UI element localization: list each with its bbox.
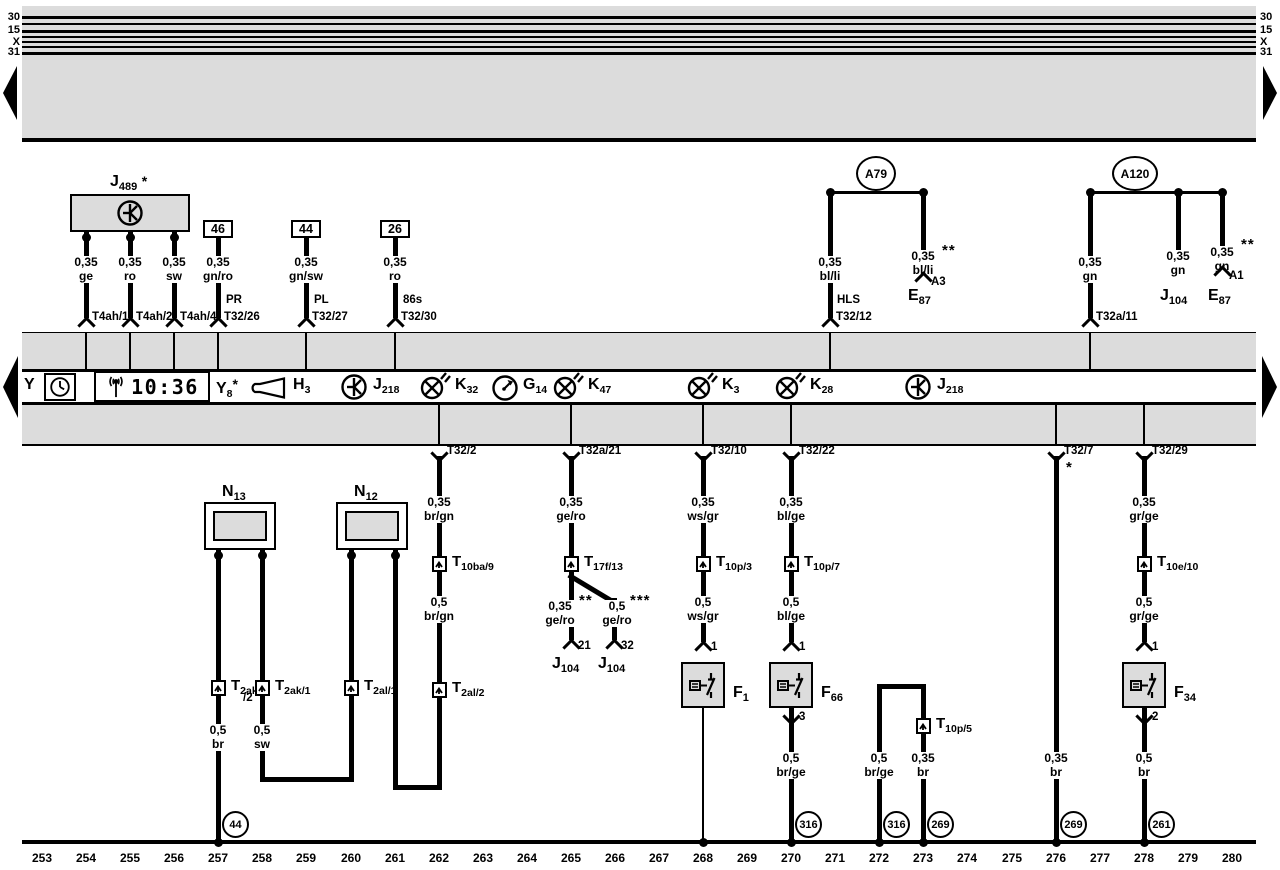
footnote-stars: ** (1241, 236, 1255, 253)
wire-label: 0,5ws/gr (684, 596, 721, 623)
y-label: Y (24, 376, 35, 394)
e87-label: E87 (908, 287, 931, 307)
feed-line (1143, 405, 1146, 444)
h3-label: H3 (293, 376, 310, 396)
feed-line (305, 333, 308, 369)
track-number: 268 (693, 851, 713, 865)
j218-left-label: J218 (373, 376, 399, 396)
radio-clock-display-box: 10:36 (94, 371, 210, 402)
plug-26: 26 (380, 220, 410, 238)
wire-f1-ground (702, 708, 705, 842)
n13-coil (213, 511, 267, 541)
feed-line (85, 333, 88, 369)
horn-icon (246, 377, 288, 399)
f66-label: F66 (821, 684, 843, 704)
ground-point-269: 269 (927, 811, 954, 838)
n12-box (336, 502, 408, 550)
k47-label: K47 (588, 376, 611, 396)
track-number: 270 (781, 851, 801, 865)
a79-link-wire (830, 191, 923, 194)
continuation-arrow-right-icon (1262, 356, 1277, 418)
footnote-star: * (1066, 459, 1073, 476)
t2ak2-label-line2: /2 (243, 692, 253, 704)
rail-label-15-right: 15 (1260, 24, 1280, 36)
track-number: 278 (1134, 851, 1154, 865)
pin-label: 1 (1152, 641, 1158, 653)
bus-line-30 (22, 16, 1256, 19)
track-number: 280 (1222, 851, 1242, 865)
t2al2-label: T2al/2 (452, 679, 485, 699)
a120-node: A120 (1112, 156, 1158, 191)
wire-label: 0,35ge/ro (542, 600, 577, 627)
pin-label: T32/7 (1064, 445, 1093, 457)
track-number: 264 (517, 851, 537, 865)
rail-label-31-left: 31 (2, 46, 20, 58)
t10p3-connector (696, 556, 711, 572)
track-number: 272 (869, 851, 889, 865)
wire-label: 0,35br/gn (421, 496, 457, 523)
warning-lamp-icon (420, 371, 452, 401)
track-number: 277 (1090, 851, 1110, 865)
n12-label: N12 (354, 483, 378, 503)
wire-label: 0,5br/ge (861, 752, 896, 779)
feed-line (394, 333, 397, 369)
wire-t32-7 (1054, 456, 1059, 842)
pin-label: T32/22 (799, 445, 835, 457)
t17f13-connector (564, 556, 579, 572)
bottom-rail (22, 840, 1256, 844)
pin-arrow-icon (782, 707, 800, 725)
a79-node: A79 (856, 156, 896, 191)
rail-label-15-left: 15 (2, 24, 20, 36)
wire-t32-2-mid (437, 572, 442, 682)
switch-icon (687, 668, 721, 702)
track-number: 259 (296, 851, 316, 865)
track-number: 253 (32, 851, 52, 865)
top-band-bottom-border (22, 138, 1256, 142)
feed-line (1089, 333, 1092, 369)
track-number: 260 (341, 851, 361, 865)
t2al2-connector (432, 682, 447, 698)
wire-label: 0,35bl/li (815, 256, 844, 283)
track-number: 279 (1178, 851, 1198, 865)
track-number: 274 (957, 851, 977, 865)
t10ba9-connector (432, 556, 447, 572)
n12-coil (345, 511, 399, 541)
t10p5-connector (916, 718, 931, 734)
pin-label: T4ah/4 (180, 311, 216, 323)
feed-line (702, 405, 705, 444)
track-number: 255 (120, 851, 140, 865)
wire-tag: HLS (837, 294, 860, 306)
warning-lamp-icon (775, 371, 807, 401)
wire-label: 0,35gn (1075, 256, 1104, 283)
strip-upper-thin-border (22, 332, 1256, 334)
feed-line (173, 333, 176, 369)
feed-line (570, 405, 573, 444)
bridge-top-wire (877, 684, 927, 689)
pin-label: T32a/21 (579, 445, 621, 457)
ground-point-261: 261 (1148, 811, 1175, 838)
track-number: 265 (561, 851, 581, 865)
wire-label: 0,5sw (251, 724, 274, 751)
wire-label: 0,35gn/ro (200, 256, 236, 283)
t10e10-label: T10e/10 (1157, 553, 1198, 573)
track-number: 257 (208, 851, 228, 865)
bus-line-31 (22, 52, 1256, 55)
pin-label: T32/27 (312, 311, 348, 323)
f1-label: F1 (733, 684, 749, 704)
wire-tag: 86s (403, 294, 422, 306)
wiring-diagram-page: 30 15 X 31 30 15 X 31 J489 * 0,35ge 0,35… (0, 0, 1280, 870)
k32-label: K32 (455, 376, 478, 396)
pin-label: 21 (578, 640, 591, 652)
e87-label: E87 (1208, 287, 1231, 307)
wire-label: 0,5gr/ge (1126, 596, 1161, 623)
n12-col262-bridge-wire (393, 785, 442, 790)
track-number: 271 (825, 851, 845, 865)
f1-box (681, 662, 725, 708)
t10e10-connector (1137, 556, 1152, 572)
j104-label: J104 (552, 655, 579, 675)
continuation-arrow-left-icon (3, 66, 17, 120)
n12-right-leg-wire (393, 550, 398, 790)
t10p7-label: T10p/7 (804, 553, 840, 573)
continuation-arrow-right-icon (1263, 66, 1277, 120)
t2al1-connector (344, 680, 359, 696)
wire-label: 0,5bl/ge (774, 596, 808, 623)
track-number: 258 (252, 851, 272, 865)
warning-lamp-icon (687, 371, 719, 401)
pin-label: T32/10 (711, 445, 747, 457)
rail-label-31-right: 31 (1260, 46, 1280, 58)
bus-line-thin-2 (22, 36, 1256, 38)
rail-label-30-left: 30 (2, 11, 20, 23)
footnote-stars: ** (579, 592, 593, 609)
plug-46: 46 (203, 220, 233, 238)
pin-label: T4ah/1 (92, 311, 128, 323)
footnote-stars: ** (942, 242, 956, 259)
j104-label: J104 (598, 655, 625, 675)
pin-label: T32a/11 (1096, 311, 1138, 323)
t2ak2-connector (211, 680, 226, 696)
n13-box (204, 502, 276, 550)
wire-label: 0,35ge (71, 256, 100, 283)
bus-line-thin-3 (22, 46, 1256, 48)
track-number: 276 (1046, 851, 1066, 865)
feed-line (790, 405, 793, 444)
wire-label: 0,35br (908, 752, 937, 779)
g14-label: G14 (523, 376, 547, 396)
ground-point-316: 316 (883, 811, 910, 838)
control-unit-icon (340, 373, 368, 401)
pin-label: T4ah/2 (136, 311, 172, 323)
t10p3-label: T10p/3 (716, 553, 752, 573)
feed-line (217, 333, 220, 369)
track-number: 261 (385, 851, 405, 865)
t2al1-label: T2al/1 (364, 677, 397, 697)
wire-label: 0,35gn/sw (286, 256, 326, 283)
rail-label-30-right: 30 (1260, 11, 1280, 23)
j218-right-label: J218 (937, 376, 963, 396)
t2ak1-connector (255, 680, 270, 696)
wire-label: 0,35sw (159, 256, 188, 283)
plug-44: 44 (291, 220, 321, 238)
ground-point-269: 269 (1060, 811, 1087, 838)
pin-label: T32/29 (1152, 445, 1188, 457)
wire-label: 0,35ro (115, 256, 144, 283)
track-number: 269 (737, 851, 757, 865)
pin-label: T32/26 (224, 311, 260, 323)
clock-time: 10:36 (131, 375, 199, 399)
t10ba9-label: T10ba/9 (452, 553, 494, 573)
clock-icon (48, 375, 72, 399)
clock-symbol-box (44, 373, 76, 401)
wire-label: 0,35ws/gr (684, 496, 721, 523)
wire-label: 0,5br (207, 724, 230, 751)
pin-label: A3 (931, 276, 946, 288)
feed-line (829, 333, 832, 369)
track-number: 273 (913, 851, 933, 865)
warning-lamp-icon (553, 371, 585, 401)
control-unit-icon (904, 373, 932, 401)
pin-label: 1 (799, 641, 805, 653)
n13-n12-bridge-wire (260, 777, 354, 782)
pin-label: 1 (711, 641, 717, 653)
wire-label: 0,35ge/ro (553, 496, 588, 523)
wire-t32-2-low (437, 698, 442, 790)
pin-arrow-icon (694, 640, 712, 658)
wire-label: 0,35bl/ge (774, 496, 808, 523)
control-unit-icon (116, 199, 144, 227)
k3-label: K3 (722, 376, 739, 396)
footnote-stars: *** (630, 592, 651, 609)
track-number: 275 (1002, 851, 1022, 865)
top-rail-band (22, 6, 1256, 138)
pin-label: A1 (1229, 270, 1244, 282)
t17f13-label: T17f/13 (584, 553, 623, 573)
wire-label: 0,35ro (380, 256, 409, 283)
y8-label: Y8* (216, 376, 238, 400)
track-number: 266 (605, 851, 625, 865)
a120-link-wire (1090, 191, 1222, 194)
feed-line (129, 333, 132, 369)
ground-point-44: 44 (222, 811, 249, 838)
pin-label: T32/30 (401, 311, 437, 323)
bus-line-thin-1 (22, 23, 1256, 25)
ground-point-316: 316 (795, 811, 822, 838)
pin-arrow-icon (782, 640, 800, 658)
pin-arrow-icon (1135, 707, 1153, 725)
wire-label: 0,35gr/ge (1126, 496, 1161, 523)
wire-label: 0,5br (1133, 752, 1156, 779)
wire-label: 0,35br (1041, 752, 1070, 779)
n12-left-leg-wire (349, 550, 354, 782)
f66-box (769, 662, 813, 708)
gauge-icon (491, 374, 519, 402)
track-number: 262 (429, 851, 449, 865)
pin-label: 2 (1152, 711, 1158, 723)
pin-label: 32 (621, 640, 634, 652)
pin-label: 3 (799, 711, 805, 723)
track-number: 256 (164, 851, 184, 865)
wire-tag: PL (314, 294, 329, 306)
track-number: 267 (649, 851, 669, 865)
f34-label: F34 (1174, 684, 1196, 704)
feed-line (1055, 405, 1058, 444)
k28-label: K28 (810, 376, 833, 396)
wire-label: 0,35gn (1163, 250, 1192, 277)
switch-icon (1128, 668, 1162, 702)
wire-label: 0,5br/ge (773, 752, 808, 779)
antenna-icon (105, 375, 127, 399)
bus-line-x (22, 41, 1256, 43)
strip-upper-gray-band (22, 333, 1256, 369)
feed-line (438, 405, 441, 444)
track-number: 254 (76, 851, 96, 865)
j489-label: J489 * (110, 173, 147, 193)
t10p7-connector (784, 556, 799, 572)
pin-label: T32/12 (836, 311, 872, 323)
continuation-arrow-left-icon (3, 356, 18, 418)
bus-line-15 (22, 30, 1256, 33)
pin-arrow-icon (1135, 640, 1153, 658)
t2ak1-label: T2ak/1 (275, 677, 310, 697)
j104-label: J104 (1160, 287, 1187, 307)
n13-left-leg-wire (216, 550, 221, 842)
switch-icon (775, 668, 809, 702)
wire-label: 0,5br/gn (421, 596, 457, 623)
f34-box (1122, 662, 1166, 708)
pin-label: T32/2 (447, 445, 476, 457)
track-number: 263 (473, 851, 493, 865)
strip-lower-gray-band (22, 405, 1256, 444)
t10p5-label: T10p/5 (936, 715, 972, 735)
n13-label: N13 (222, 483, 246, 503)
wire-tag: PR (226, 294, 242, 306)
